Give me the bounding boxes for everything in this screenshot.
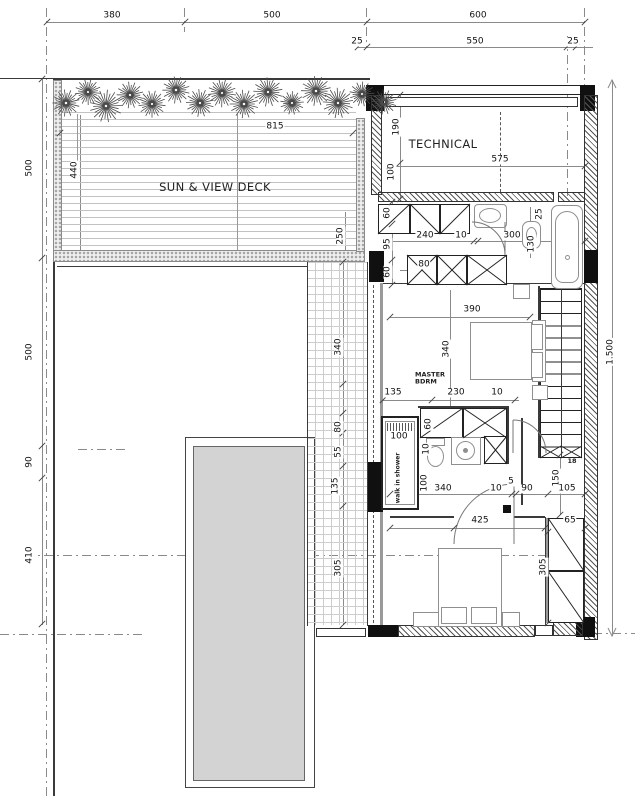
closet-master-3 xyxy=(467,255,507,285)
dim-line-bath2-h xyxy=(390,494,585,495)
dimension-label: 500 xyxy=(26,342,35,361)
south-wall-gap xyxy=(535,625,553,636)
bed2-pillow-1 xyxy=(441,607,467,624)
dimension-label: 440 xyxy=(71,160,80,179)
dimension-label: 25 xyxy=(350,38,363,47)
axis-line-f xyxy=(78,449,125,450)
dimension-label: 1.500 xyxy=(607,338,616,366)
dimension-label: 80 xyxy=(335,420,344,433)
bed-master xyxy=(470,322,532,380)
dimension-label: 390 xyxy=(462,306,481,315)
dimension-label: 230 xyxy=(446,389,465,398)
dimension-label: 305 xyxy=(540,557,549,576)
deck-wall-left xyxy=(53,80,62,262)
dimension-label: 135 xyxy=(383,389,402,398)
dimension-label: 100 xyxy=(421,473,430,492)
deck-room-label: SUN & VIEW DECK xyxy=(159,180,271,194)
door-arc-bedroom2 xyxy=(454,484,514,544)
sink-bath1-basin xyxy=(479,208,501,223)
dimension-label: 130 xyxy=(528,234,537,253)
dimension-label: 380 xyxy=(102,12,121,21)
hedge-tree xyxy=(253,77,282,106)
bed-master-pillow-2 xyxy=(531,352,543,378)
deck-wall-right xyxy=(356,118,365,252)
dim-line-top-1 xyxy=(47,22,585,23)
hedge-tree xyxy=(75,79,101,105)
dimension-label: 575 xyxy=(490,156,509,165)
hedge-tree xyxy=(280,91,303,114)
tech-dashed-line xyxy=(500,112,501,192)
walk-in-shower-label: walk in shower xyxy=(395,453,402,504)
dimension-label: 300 xyxy=(502,232,521,241)
technical-room-label: TECHNICAL xyxy=(409,137,478,151)
dimension-label: 550 xyxy=(465,38,484,47)
closet-bath2-3 xyxy=(484,436,507,464)
hedge-tree xyxy=(117,82,143,109)
axis-line-i xyxy=(593,633,635,634)
column-east-mid xyxy=(584,250,598,283)
dimension-label: 340 xyxy=(443,339,452,358)
tech-west-wall xyxy=(371,95,382,195)
dimension-label: 600 xyxy=(468,12,487,21)
axis-line-c xyxy=(366,8,367,48)
dimension-label: 190 xyxy=(393,117,402,136)
nightstand-master-1 xyxy=(513,284,530,299)
dimension-label: 500 xyxy=(26,158,35,177)
axis-line-h xyxy=(0,634,143,635)
dimension-label: 340 xyxy=(335,337,344,356)
dim-line-master-390 xyxy=(390,317,530,318)
terrace-right-edge xyxy=(367,262,368,626)
dim-line-left xyxy=(42,78,43,625)
dimension-label: 410 xyxy=(26,545,35,564)
dimension-label: 305 xyxy=(335,558,344,577)
dimension-label: 5 xyxy=(507,478,515,487)
dim-line-top-2 xyxy=(358,47,593,48)
dimension-tick xyxy=(38,620,45,627)
dimension-label: 65 xyxy=(563,517,576,526)
dimension-label: 25 xyxy=(536,207,545,220)
dimension-label: 100 xyxy=(388,162,397,181)
doorpost-bedroom2 xyxy=(503,505,511,513)
bathtub-inner xyxy=(555,211,579,283)
dimension-label: 240 xyxy=(415,232,434,241)
dimension-label: 90 xyxy=(26,455,35,468)
dimension-label: 135 xyxy=(332,476,341,495)
hedge-tree xyxy=(301,76,331,106)
dim-line-tech-575 xyxy=(390,166,585,167)
dimension-label: 250 xyxy=(337,226,346,245)
east-wall xyxy=(584,95,598,640)
dimension-tick xyxy=(581,18,588,25)
closet-bath1-3 xyxy=(440,204,470,234)
dimension-label: 500 xyxy=(262,12,281,21)
slab-edge-dashed xyxy=(373,285,374,623)
boundary-top-extension xyxy=(0,78,55,79)
garden-top-line xyxy=(57,266,307,267)
wall-bedroom2-north-w xyxy=(390,516,454,518)
dimension-label: 10 xyxy=(423,442,432,455)
dimension-label: 95 xyxy=(384,237,393,250)
dimension-label: 60 xyxy=(425,417,434,430)
axis-line-e xyxy=(567,36,568,196)
nightstand-master-2 xyxy=(532,385,548,400)
wardrobe-bedroom2-bottom xyxy=(548,571,584,623)
column-south-west xyxy=(368,625,398,637)
master-bedroom-label: MASTER BDRM xyxy=(415,372,449,387)
shower-grate xyxy=(387,423,413,431)
stair-step-count-label: 18 xyxy=(567,457,576,465)
bed2-pillow-2 xyxy=(471,607,497,624)
nightstand-bed2-right xyxy=(502,612,520,627)
terrace-left-edge xyxy=(307,262,308,626)
dimension-label: 90 xyxy=(520,485,533,494)
dimension-label: 10 xyxy=(490,389,503,398)
dimension-label: 10 xyxy=(454,232,467,241)
dimension-label: 815 xyxy=(265,123,284,132)
dimension-label: 425 xyxy=(470,517,489,526)
partition-bath1-north-2 xyxy=(558,192,585,202)
closet-bath1-2 xyxy=(410,204,440,234)
wall-bedroom2-north-e xyxy=(514,516,545,518)
dimension-label: 105 xyxy=(557,485,576,494)
wardrobe-bedroom2-top xyxy=(548,518,584,571)
staircase-divider xyxy=(561,288,562,458)
dimension-label: 60 xyxy=(384,265,393,278)
deck-wall-bottom xyxy=(53,250,365,262)
wall-bath2-east xyxy=(507,406,509,464)
sink-bath2-faucet xyxy=(463,448,468,453)
tech-louver-band xyxy=(386,97,578,107)
dimension-label: 60 xyxy=(384,206,393,219)
dimension-label: 25 xyxy=(566,38,579,47)
terrace-parapet-south xyxy=(316,628,366,637)
bathtub-drain xyxy=(565,255,570,260)
floor-plan-canvas: SUN & VIEW DECK TECHNICAL MASTER BDRM wa… xyxy=(0,0,635,805)
south-wall-2 xyxy=(553,622,583,636)
nightstand-bed2-left xyxy=(413,612,439,627)
dimension-label: 340 xyxy=(433,485,452,494)
closet-master-2 xyxy=(437,255,467,285)
bed-master-pillow-1 xyxy=(531,324,543,350)
hedge-tree xyxy=(208,79,236,107)
dim-line-master-bottom xyxy=(383,400,519,401)
deck-top-edge xyxy=(53,78,370,80)
axis-line-a xyxy=(46,8,47,800)
closet-bath2-2 xyxy=(463,408,507,438)
deck-plank-joint-2 xyxy=(77,114,78,166)
dim-line-tech-v xyxy=(400,95,401,199)
dimension-label: 100 xyxy=(389,433,408,442)
dimension-label: 55 xyxy=(335,445,344,458)
partition-bath1-north xyxy=(378,192,554,202)
master-bedroom-label-line2: BDRM xyxy=(415,379,449,386)
dimension-label: 10 xyxy=(489,485,502,494)
hedge-tree xyxy=(162,77,189,104)
lower-roof-fill xyxy=(193,446,305,781)
dimension-label: 80 xyxy=(417,261,430,270)
